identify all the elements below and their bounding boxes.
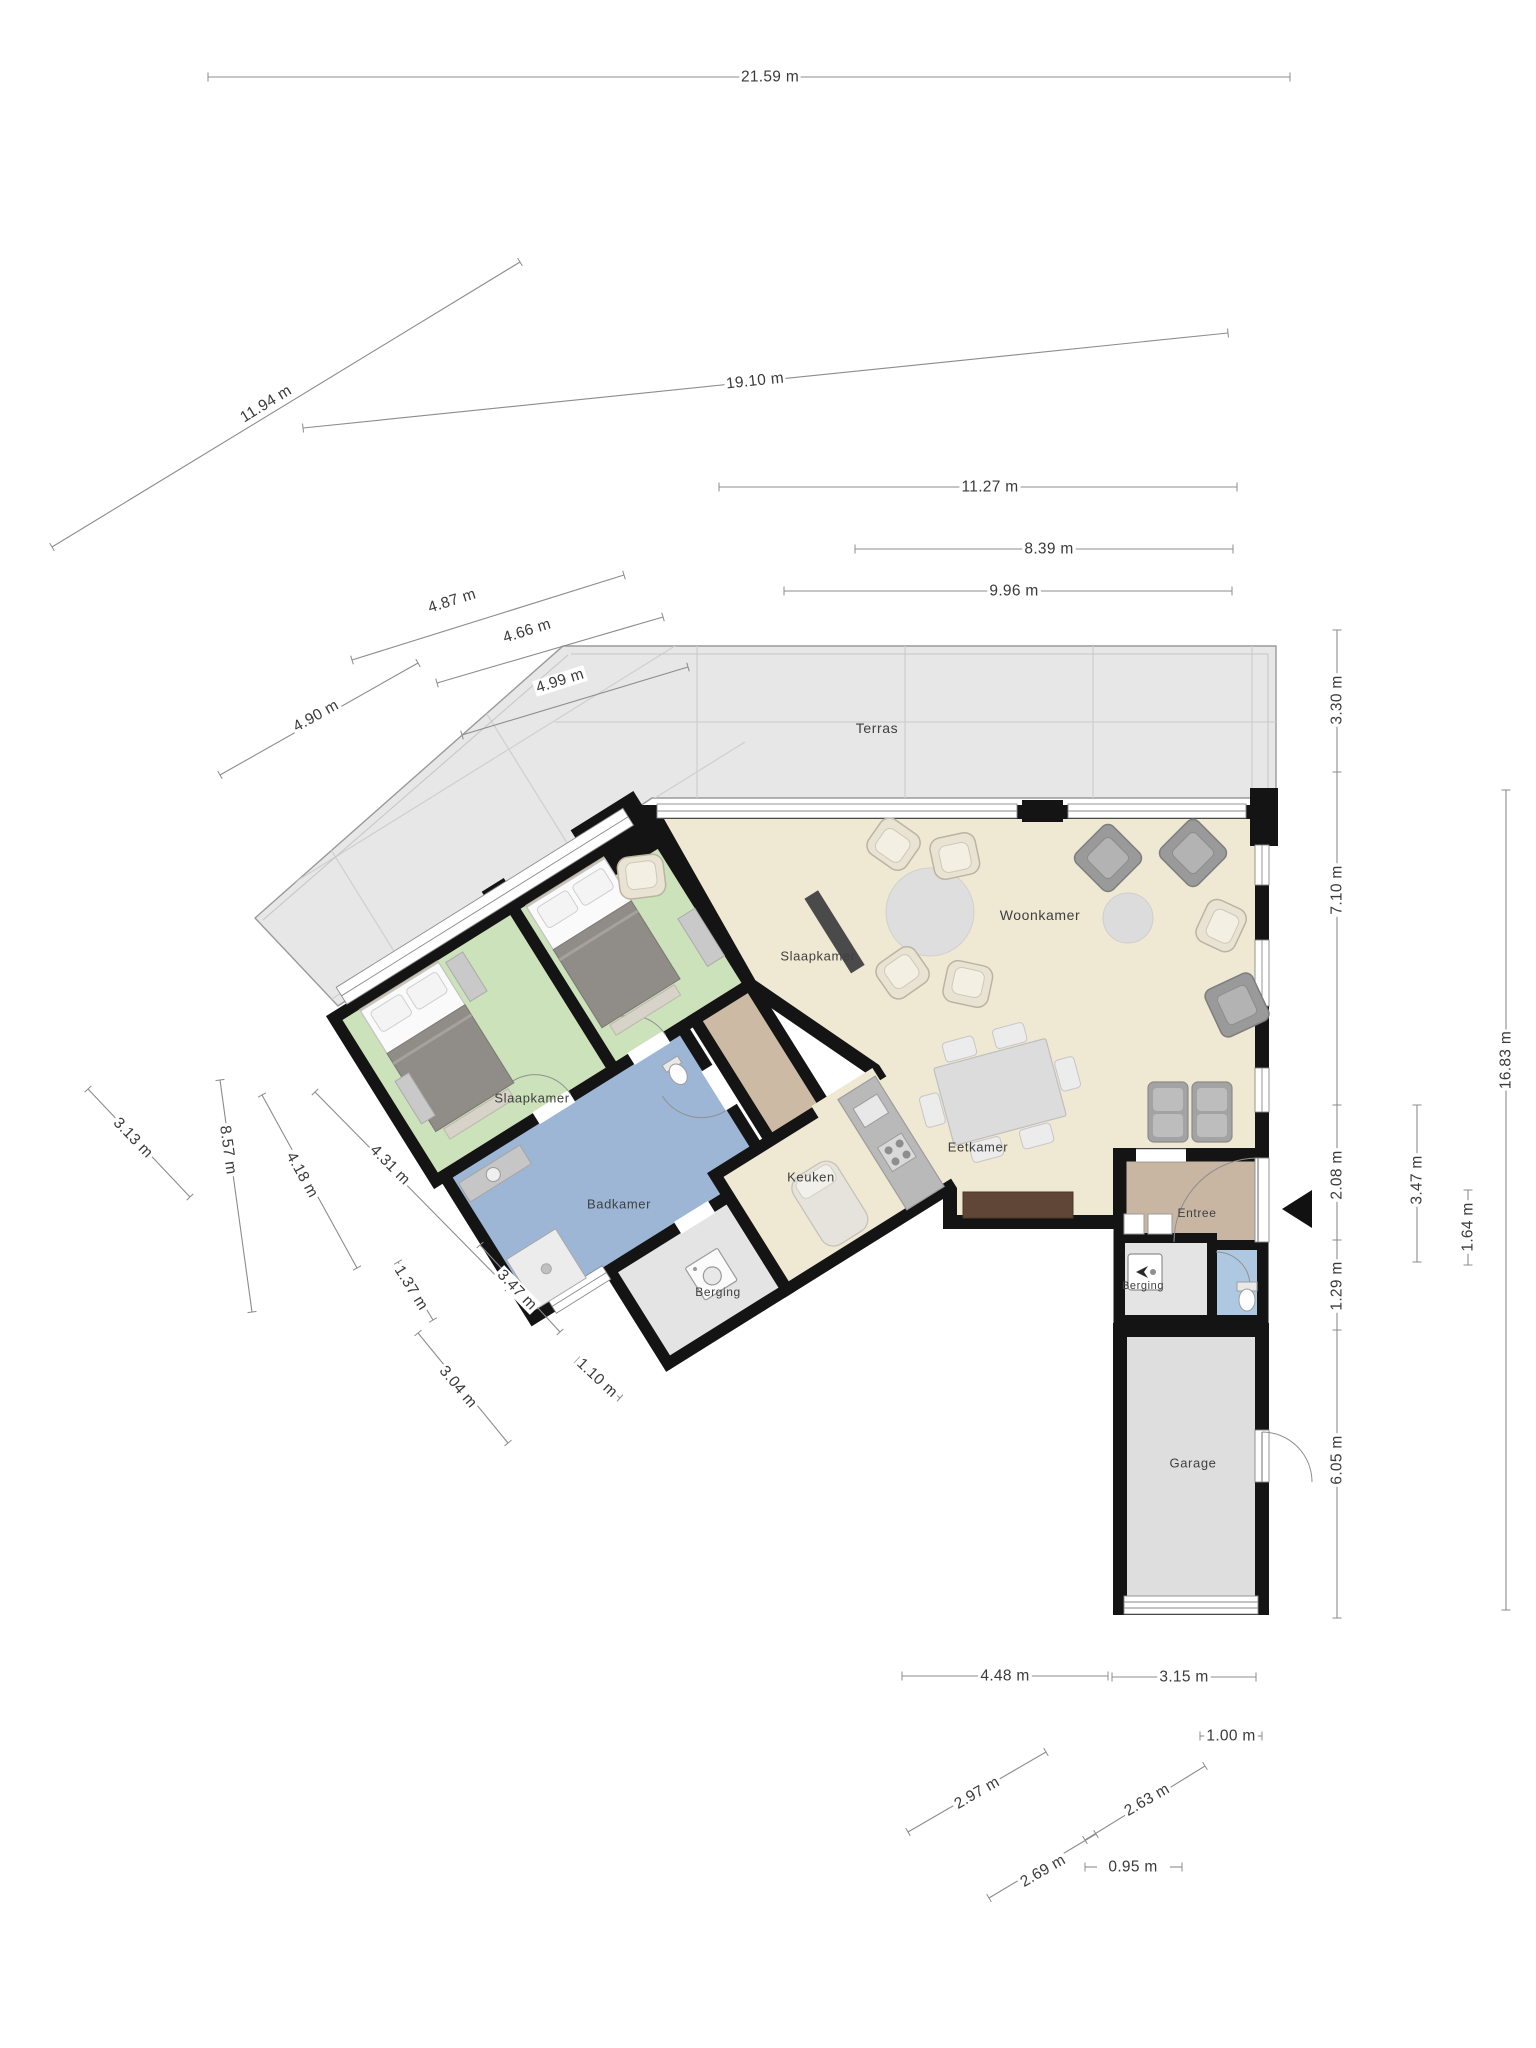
dimension-label: 2.08 m	[1329, 1150, 1346, 1199]
garage-side-door	[1255, 1430, 1312, 1482]
dimension-label: 2.69 m	[1017, 1851, 1068, 1890]
dimension-label: 4.66 m	[501, 615, 553, 646]
dimension-label: 7.10 m	[1329, 865, 1346, 914]
dimension-4_18m-27: 4.18 m	[258, 1093, 361, 1270]
dimension-label: 1.29 m	[1329, 1261, 1346, 1310]
dimension-label: 4.31 m	[367, 1142, 414, 1189]
dimension-label: 19.10 m	[725, 370, 785, 393]
armchair	[941, 959, 995, 1010]
dimension-label: 3.13 m	[110, 1114, 156, 1161]
dimension-label: 2.97 m	[951, 1773, 1002, 1812]
dimension-1_64m-16: 1.64 m	[1460, 1190, 1477, 1265]
dimension-21_59m-0: 21.59 m	[208, 69, 1290, 86]
dimension-2_69m-23: 2.69 m	[987, 1830, 1099, 1902]
dimension-label: 2.63 m	[1121, 1780, 1172, 1819]
sideboard	[963, 1192, 1073, 1218]
room-label-eetkamer: Eetkamer	[948, 1140, 1009, 1155]
dimension-label: 6.05 m	[1329, 1435, 1346, 1484]
dimension-2_08m-12: 2.08 m	[1329, 1105, 1346, 1240]
dimension-label: 21.59 m	[741, 69, 799, 86]
dimension-label: 8.39 m	[1024, 541, 1073, 558]
dimension-11_94m-1: 11.94 m	[50, 258, 523, 551]
room-label-entree: Entree	[1178, 1206, 1217, 1220]
armchair	[928, 831, 982, 882]
dimension-label: 9.96 m	[989, 583, 1038, 600]
entrance-arrow	[1282, 1190, 1312, 1228]
dimension-2_63m-22: 2.63 m	[1083, 1762, 1208, 1844]
dimension-label: 3.30 m	[1329, 675, 1346, 724]
room-label-berging-links: Berging	[695, 1285, 741, 1299]
room-label-slaapkamer-2: Slaapkamer	[780, 949, 855, 964]
dimension-8_39m-4: 8.39 m	[855, 541, 1233, 558]
garage-door	[1124, 1596, 1258, 1614]
dimension-9_96m-5: 9.96 m	[784, 583, 1232, 600]
dimension-label: 16.83 m	[1498, 1031, 1515, 1089]
room-label-terras: Terras	[856, 720, 899, 736]
dimension-label: 4.18 m	[283, 1149, 322, 1200]
room-label-woonkamer: Woonkamer	[1000, 907, 1081, 923]
entree-fixtures	[1124, 1214, 1172, 1234]
dimension-0_95m-24: 0.95 m	[1085, 1859, 1182, 1876]
dimension-label: 0.95 m	[1108, 1859, 1157, 1876]
dimension-4_90m-9: 4.90 m	[218, 659, 420, 779]
dimension-label: 1.00 m	[1206, 1728, 1255, 1745]
dimension-3_04m-31: 3.04 m	[415, 1330, 512, 1446]
dimension-11_27m-3: 11.27 m	[719, 479, 1237, 496]
dimension-16_83m-17: 16.83 m	[1498, 790, 1515, 1610]
dimension-label: 4.48 m	[980, 1668, 1029, 1685]
dimension-6_05m-14: 6.05 m	[1329, 1330, 1346, 1618]
floor-plan: Plattegrond begane grond	[0, 0, 1536, 2048]
dimension-3_15m-19: 3.15 m	[1112, 1669, 1256, 1686]
dimension-7_10m-11: 7.10 m	[1329, 772, 1346, 1105]
dimension-3_13m-25: 3.13 m	[85, 1086, 194, 1200]
dimension-label: 4.87 m	[426, 585, 478, 616]
room-label-garage: Garage	[1170, 1456, 1217, 1471]
room-label-badkamer: Badkamer	[587, 1197, 651, 1212]
dimension-label: 4.90 m	[290, 697, 341, 736]
dimension-label: 11.27 m	[962, 479, 1019, 496]
floorplan-page: Plattegrond begane grond	[0, 0, 1536, 2048]
dimension-label: 1.64 m	[1460, 1202, 1477, 1251]
rug	[886, 868, 974, 956]
dimension-1_37m-29: 1.37 m	[390, 1260, 437, 1323]
door-swing-arc	[1262, 1432, 1312, 1482]
dimension-2_97m-21: 2.97 m	[906, 1748, 1049, 1836]
dimension-1_29m-13: 1.29 m	[1329, 1240, 1346, 1330]
dimension-1_10m-32: 1.10 m	[572, 1354, 623, 1402]
dimension-label: 3.04 m	[436, 1363, 481, 1412]
dimension-4_48m-18: 4.48 m	[902, 1668, 1108, 1685]
room-label-berging-rechts: Berging	[1122, 1280, 1164, 1292]
dimension-label: 3.47 m	[1409, 1155, 1426, 1204]
dimension-label: 1.37 m	[391, 1263, 431, 1314]
dimension-3_47m-15: 3.47 m	[1409, 1105, 1426, 1262]
dimension-label: 1.10 m	[573, 1355, 621, 1401]
dimension-1_00m-20: 1.00 m	[1200, 1728, 1262, 1745]
dimension-3_30m-10: 3.30 m	[1329, 630, 1346, 772]
dimension-label: 8.57 m	[216, 1124, 240, 1175]
dimension-19_10m-2: 19.10 m	[303, 329, 1229, 433]
dimension-8_57m-26: 8.57 m	[216, 1079, 257, 1312]
rug	[1103, 893, 1153, 943]
room-label-keuken: Keuken	[787, 1170, 835, 1185]
armchair	[616, 853, 667, 900]
entree-opening	[1136, 1149, 1186, 1162]
room-label-slaapkamer-1: Slaapkamer	[494, 1091, 569, 1106]
dimension-label: 3.15 m	[1159, 1669, 1208, 1686]
